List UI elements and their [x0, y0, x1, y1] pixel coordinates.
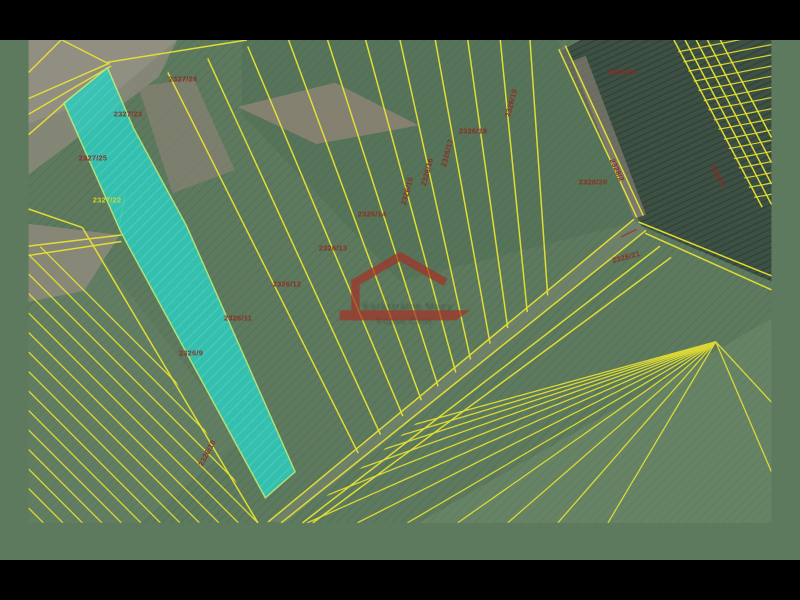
map-svg [0, 40, 800, 560]
map-canvas[interactable] [0, 40, 800, 560]
letterbox-bottom [0, 560, 800, 600]
letterbox-top [0, 0, 800, 40]
watermark-text-line2: Kúpne Ceny [377, 316, 434, 326]
watermark-text-line1: Katastrálne Mapy [363, 302, 453, 313]
map-screenshot: Katastrálne Mapy Kúpne Ceny 2327/242327/… [0, 0, 800, 600]
